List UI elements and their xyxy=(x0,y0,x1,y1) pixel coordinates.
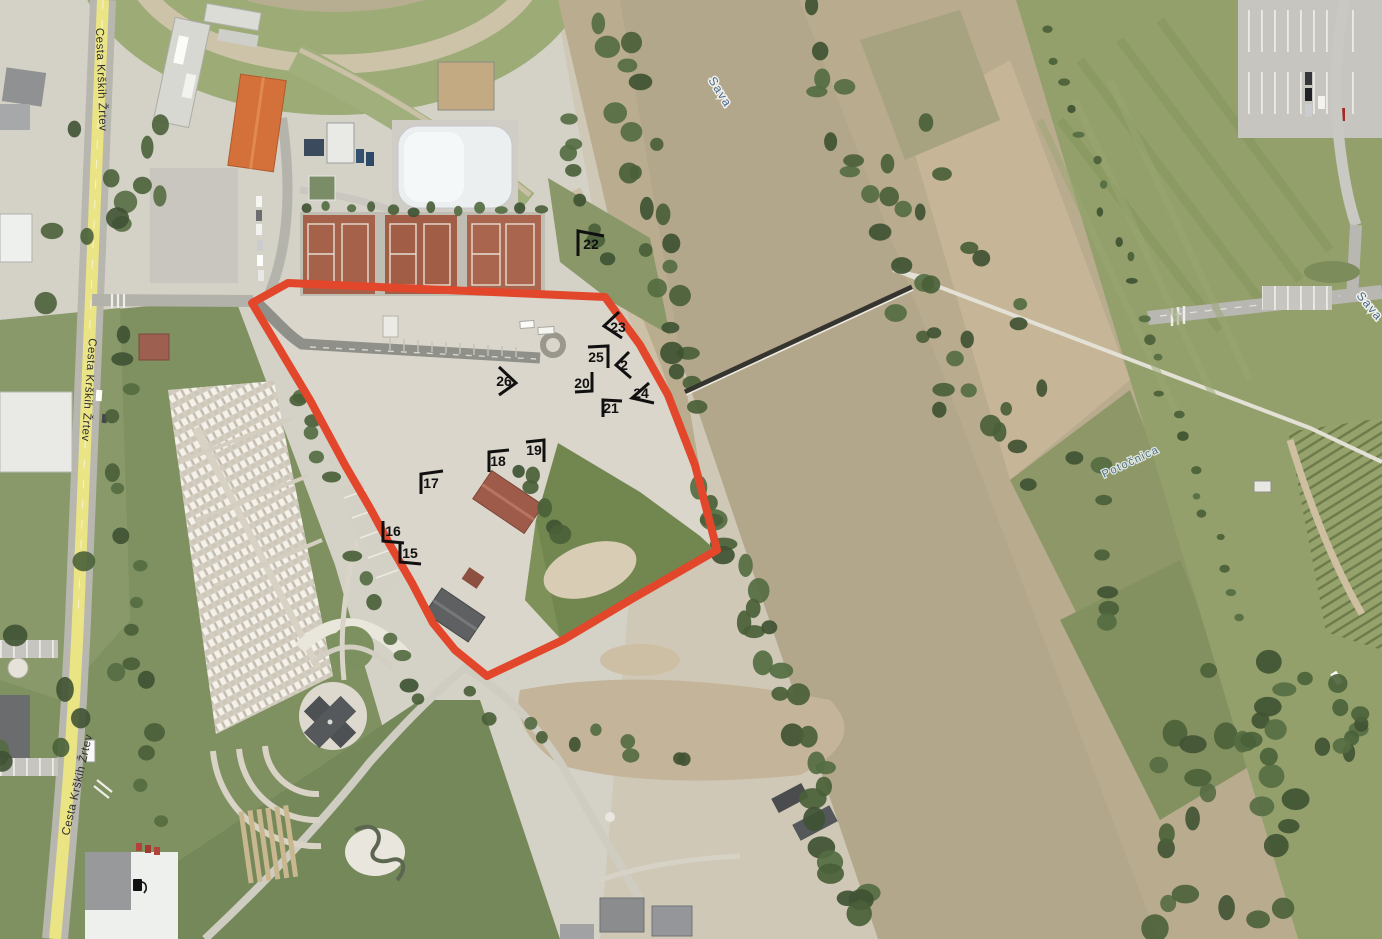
photo-marker-number: 2 xyxy=(620,357,628,373)
fuel-station-icon xyxy=(133,879,146,893)
site-boundary xyxy=(252,283,717,676)
stream-label-potocnica: Potočnica xyxy=(1100,444,1161,481)
photo-marker-number: 17 xyxy=(423,475,439,491)
photo-marker-number: 24 xyxy=(633,385,649,401)
photo-marker-number: 16 xyxy=(385,523,401,539)
photo-marker-15[interactable]: 15 xyxy=(400,543,421,564)
photo-marker-26[interactable]: 26 xyxy=(496,367,516,395)
photo-marker-2[interactable]: 2 xyxy=(616,352,631,378)
footbridge xyxy=(685,287,913,395)
photo-marker-number: 19 xyxy=(526,442,542,458)
photo-marker-number: 23 xyxy=(610,319,626,335)
photo-marker-number: 18 xyxy=(490,453,506,469)
photo-marker-19[interactable]: 19 xyxy=(526,440,544,462)
photo-marker-number: 26 xyxy=(496,373,512,389)
photo-marker-21[interactable]: 21 xyxy=(603,400,622,417)
road-label-cesta-top: Cesta Krških Žrtev xyxy=(93,28,110,132)
photo-marker-number: 22 xyxy=(583,236,599,252)
aerial-map: 2223252262024211918171615Cesta Krških Žr… xyxy=(0,0,1382,939)
river-label-sava-top: Sava xyxy=(705,74,735,110)
photo-marker-24[interactable]: 24 xyxy=(632,383,654,403)
photo-marker-18[interactable]: 18 xyxy=(489,450,509,472)
photo-marker-17[interactable]: 17 xyxy=(421,471,443,494)
annotation-overlay: 2223252262024211918171615Cesta Krških Žr… xyxy=(0,0,1382,939)
photo-marker-20[interactable]: 20 xyxy=(574,372,592,392)
photo-marker-number: 15 xyxy=(402,545,418,561)
road-label-cesta-mid: Cesta Krških Žrtev xyxy=(79,338,99,442)
road-label-cesta-bottom: Cesta Krških Žrtev xyxy=(59,733,95,837)
photo-marker-number: 20 xyxy=(574,375,590,391)
river-label-sava-right: Sava xyxy=(1354,289,1382,324)
photo-marker-22[interactable]: 22 xyxy=(578,231,604,256)
photo-marker-number: 21 xyxy=(603,400,619,416)
photo-marker-25[interactable]: 25 xyxy=(588,346,608,368)
photo-marker-number: 25 xyxy=(588,349,604,365)
